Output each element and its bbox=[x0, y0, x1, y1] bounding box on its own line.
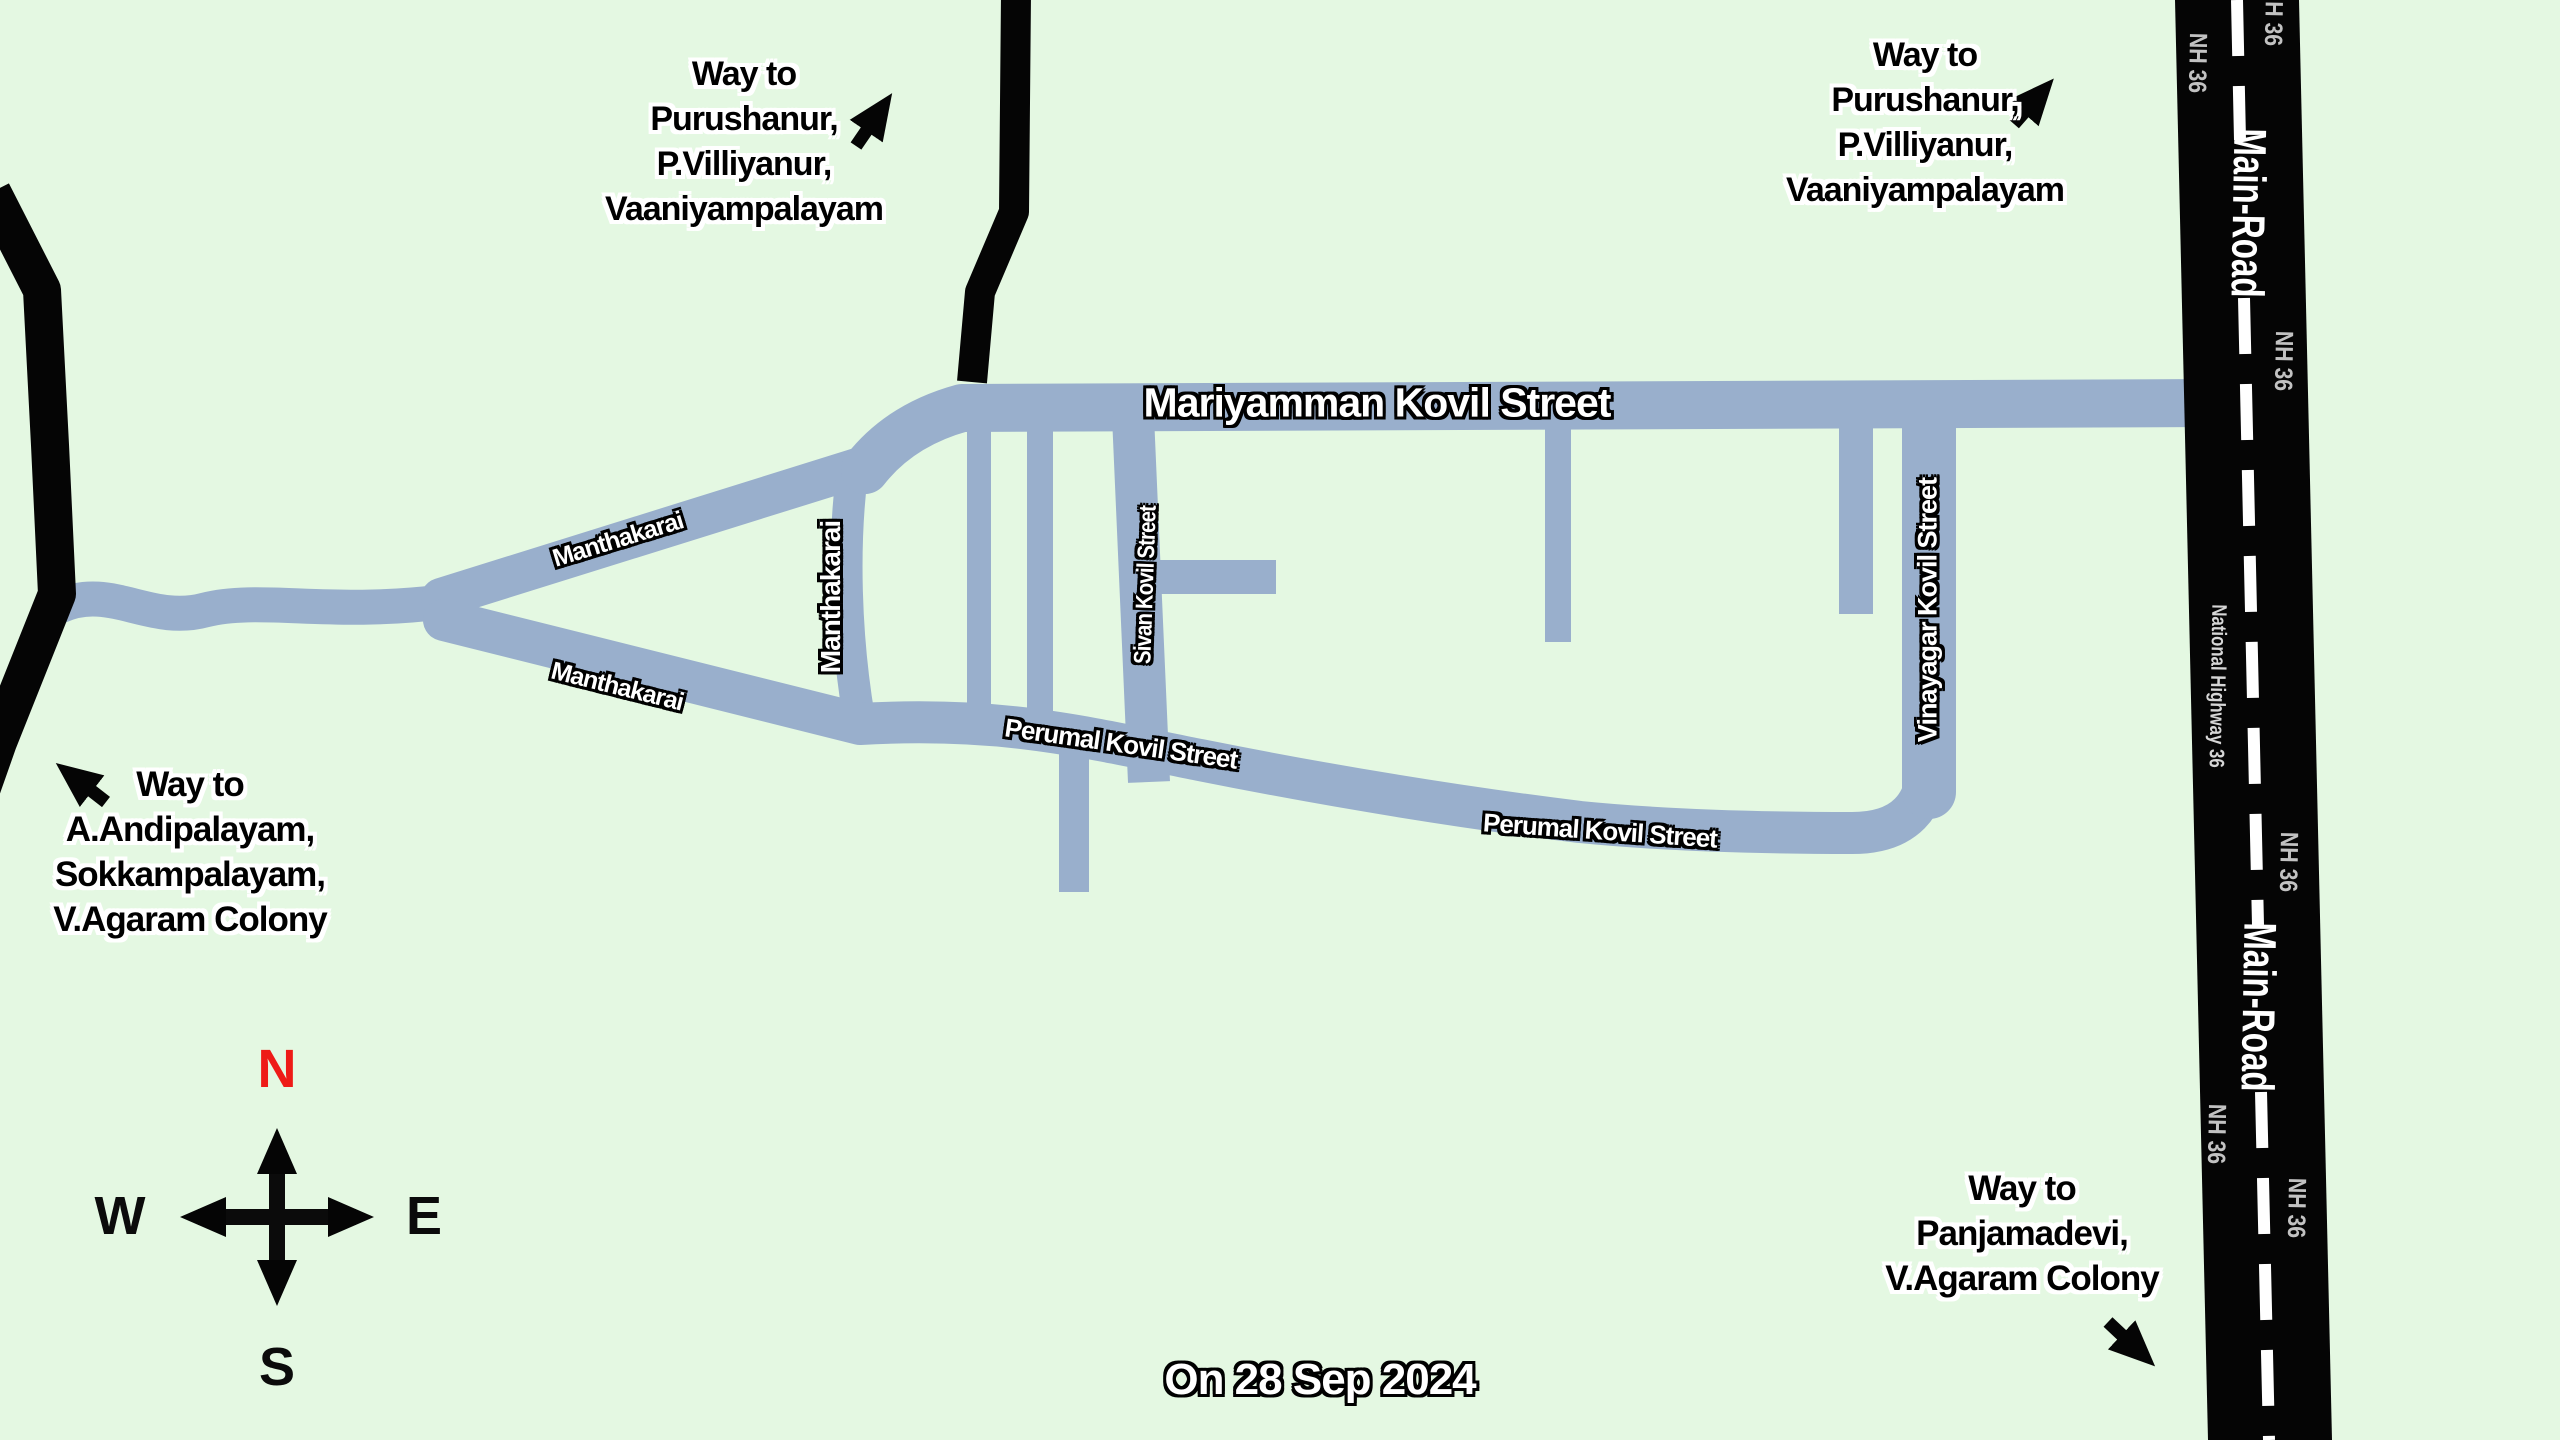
map-date-label: On 28 Sep 2024 bbox=[1164, 1355, 1475, 1405]
street-label-sivan: Sivan Kovil Street bbox=[1129, 505, 1163, 664]
street-label-mariyamman: Mariyamman Kovil Street bbox=[1144, 380, 1611, 427]
west-highway-road bbox=[0, 192, 57, 850]
waypost-line: Way to bbox=[53, 762, 327, 807]
waypost-line: Vaaniyampalayam bbox=[1786, 168, 2064, 213]
waypost-line: V.Agaram Colony bbox=[1885, 1256, 2159, 1301]
waypost-line: A.Andipalayam, bbox=[53, 807, 327, 852]
waypost-line: V.Agaram Colony bbox=[53, 897, 327, 942]
village-street-map: Mariyamman Kovil Street Manthakarai Mant… bbox=[0, 0, 2560, 1440]
street-label-manthakarai-vertical: Manthakarai bbox=[815, 521, 847, 673]
waypost-line: Purushanur, bbox=[1786, 78, 2064, 123]
arrow-way-bottom-right bbox=[2108, 1322, 2142, 1354]
nh36-badge-5: NH 36 bbox=[2201, 1104, 2231, 1165]
nh36-badge-1: NH 36 bbox=[2258, 0, 2288, 46]
street-label-vinayagar: Vinayagar Kovil Street bbox=[1913, 478, 1944, 742]
waypost-line: Purushanur, bbox=[605, 97, 883, 142]
waypost-line: Way to bbox=[1786, 33, 2064, 78]
waypost-line: Vaaniyampalayam bbox=[605, 187, 883, 232]
waypost-line: Sokkampalayam, bbox=[53, 852, 327, 897]
main-road-label-lower: Main-Road bbox=[2231, 922, 2288, 1092]
nh36-badge-6: NH 36 bbox=[2281, 1178, 2311, 1239]
nh36-badge-3: NH 36 bbox=[2268, 331, 2298, 392]
compass-north-label: N bbox=[258, 1038, 297, 1100]
manthakarai-west-wavy-road bbox=[60, 599, 441, 613]
map-canvas bbox=[0, 0, 2560, 1440]
waypost-bottom-right: Way to Panjamadevi, V.Agaram Colony bbox=[1885, 1166, 2159, 1301]
waypost-line: P.Villiyanur, bbox=[605, 142, 883, 187]
compass-rose bbox=[198, 1146, 356, 1288]
waypost-top-right: Way to Purushanur, P.Villiyanur, Vaaniya… bbox=[1786, 33, 2064, 213]
waypost-line: Panjamadevi, bbox=[1885, 1211, 2159, 1256]
compass-west-label: W bbox=[95, 1185, 146, 1247]
national-highway-label: National Highway 36 bbox=[2204, 604, 2231, 768]
perumal-kovil-street-road bbox=[444, 500, 1929, 833]
compass-east-label: E bbox=[406, 1185, 442, 1247]
north-link-road bbox=[972, 0, 1016, 382]
manthakarai-vertical-road bbox=[847, 474, 859, 718]
nh36-center-dash-bottom bbox=[2261, 1092, 2269, 1440]
waypost-line: P.Villiyanur, bbox=[1786, 123, 2064, 168]
nh36-badge-4: NH 36 bbox=[2273, 832, 2303, 893]
main-road-label-upper: Main-Road bbox=[2221, 128, 2278, 298]
waypost-line: Way to bbox=[605, 52, 883, 97]
nh36-badge-2: NH 36 bbox=[2182, 33, 2212, 94]
waypost-line: Way to bbox=[1885, 1166, 2159, 1211]
waypost-bottom-left: Way to A.Andipalayam, Sokkampalayam, V.A… bbox=[53, 762, 327, 942]
compass-south-label: S bbox=[259, 1336, 295, 1398]
waypost-top-left: Way to Purushanur, P.Villiyanur, Vaaniya… bbox=[605, 52, 883, 232]
